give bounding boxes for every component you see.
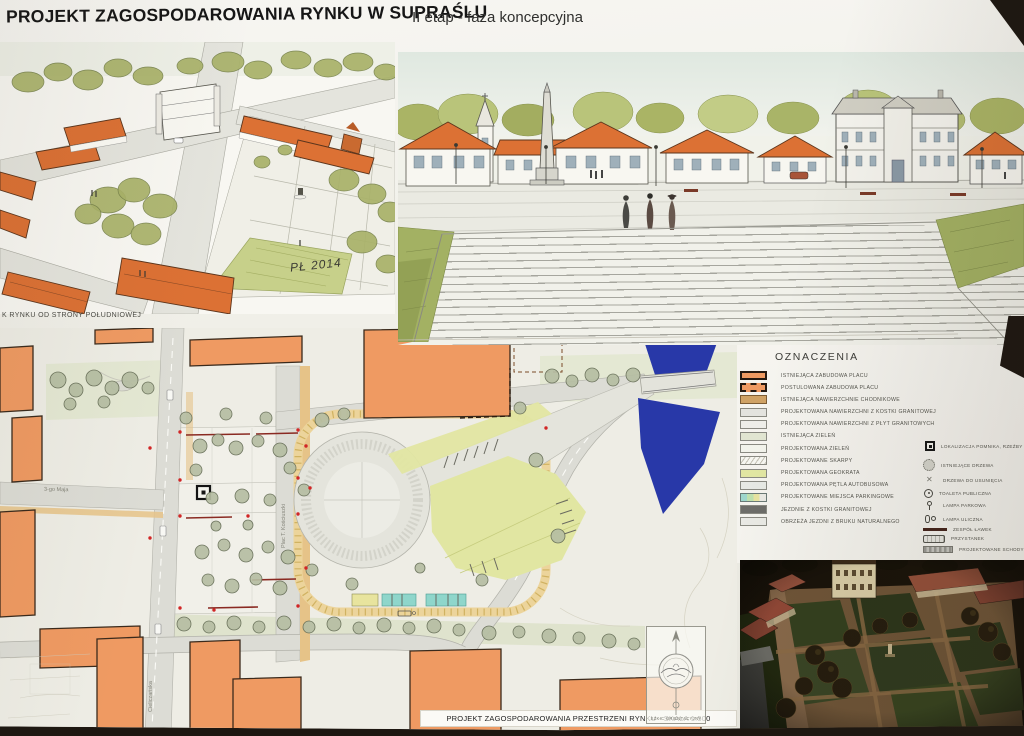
tree-icon [923, 459, 935, 471]
sketch-south-view [0, 42, 395, 314]
legend-item: DRZEWA DO USUNIĘCIA [923, 475, 1023, 486]
site-plan-drawing [0, 328, 737, 736]
legend-panel: OZNACZENIA ISTNIEJĄCA ZABUDOWA PLACUPOST… [737, 341, 1024, 563]
legend-label: OBRZEŻA JEZDNI Z BRUKU NATURALNEGO [781, 519, 900, 525]
legend-label: LAMPA PARKOWA [943, 503, 986, 508]
legend-item: ISTNIEJĄCA NAWIERZCHNIE CHODNIKOWE [740, 395, 936, 404]
park-lamp-icon [923, 500, 937, 511]
legend-item: PROJEKTOWANA NAWIERZCHNI Z KOSTKI GRANIT… [740, 408, 936, 417]
legend-item: PROJEKTOWANE SKARPY [740, 456, 936, 465]
roadway-swatch [740, 505, 767, 514]
legend-item: PROJEKTOWANA PĘTLA AUTOBUSOWA [740, 481, 936, 490]
legend-label: ISTNIEJĄCA ZIELEŃ [781, 433, 835, 439]
monument-icon [925, 441, 935, 451]
legend-item: PROJEKTOWANE SCHODY [923, 546, 1023, 553]
legend-label: PRZYSTANEK [951, 536, 984, 541]
street-label-plac-kosciuszki: Plac T. Kościuszki [281, 504, 287, 548]
legend-label: PROJEKTOWANE MIEJSCA PARKINGOWE [781, 494, 894, 500]
legend-label: PROJEKTOWANA NAWIERZCHNI Z KOSTKI GRANIT… [781, 409, 936, 415]
legend-item: PRZYSTANEK [923, 535, 1023, 543]
legend-symbol-list: LOKALIZACJA POMNIKA, RZEŹBYISTNIEJĄCE DR… [923, 441, 1023, 555]
legend-label: PROJEKTOWANE SKARPY [781, 458, 852, 464]
legend-item: ISTNIEJĄCE DRZEWA [923, 459, 1023, 471]
legend-label: LOKALIZACJA POMNIKA, RZEŹBY [941, 444, 1023, 449]
poster-paper: PROJEKT ZAGOSPODAROWANIA RYNKU W SUPRAŚL… [0, 0, 1024, 736]
legend-label: ISTNIEJĄCA NAWIERZCHNIE CHODNIKOWE [781, 397, 900, 403]
legend-label: DRZEWA DO USUNIĘCIA [943, 478, 1003, 483]
toilet-icon [924, 489, 933, 498]
legend-item: ISTNIEJĄCA ZABUDOWA PLACU [740, 371, 936, 380]
compass-rose-icon [647, 627, 705, 723]
sketch-east-view [398, 52, 1024, 342]
car [790, 172, 808, 179]
legend-label: PROJEKTOWANA GEOKRATA [781, 470, 860, 476]
road-edge-swatch [740, 517, 767, 526]
legend-label: TOALETA PUBLICZNA [939, 491, 991, 496]
legend-label: LAMPA ULICZNA [943, 517, 983, 522]
legend-item: OBRZEŻA JEZDNI Z BRUKU NATURALNEGO [740, 517, 936, 526]
compass-label: SZKIC ORIENTACYJNY [647, 716, 705, 721]
render-3d-drawing [740, 560, 1024, 736]
legend-item: JEZDNIE Z KOSTKI GRANITOWEJ [740, 505, 936, 514]
render-3d-visualization [740, 560, 1024, 736]
legend-title: OZNACZENIA [775, 351, 859, 363]
legend-item: LAMPA ULICZNA [923, 514, 1023, 525]
legend-item: TOALETA PUBLICZNA [923, 489, 1023, 498]
legend-label: POSTULOWANA ZABUDOWA PLACU [781, 385, 878, 391]
street-label-cieliczanska: Cieliczańska [148, 681, 154, 712]
legend-item: ZESPÓŁ ŁAWEK [923, 527, 1023, 532]
existing-sidewalk-swatch [740, 395, 767, 404]
parking-swatch [740, 493, 767, 502]
legend-item: PROJEKTOWANA GEOKRATA [740, 469, 936, 478]
bus-stop-icon [923, 535, 945, 543]
legend-item: PROJEKTOWANE MIEJSCA PARKINGOWE [740, 493, 936, 502]
legend-item: LOKALIZACJA POMNIKA, RZEŹBY [923, 441, 1023, 451]
compass-box: SZKIC ORIENTACYJNY [646, 626, 706, 724]
granite-slab-swatch [740, 420, 767, 429]
legend-label: PROJEKTOWANA ZIELEŃ [781, 446, 849, 452]
south-sketch-drawing [0, 42, 395, 314]
planned-green-swatch [740, 444, 767, 453]
legend-item: LAMPA PARKOWA [923, 500, 1023, 511]
poster-subtitle: II etap - faza koncepcyjna [412, 9, 583, 26]
legend-item: PROJEKTOWANA ZIELEŃ [740, 444, 936, 453]
legend-label: PROJEKTOWANA NAWIERZCHNI Z PŁYT GRANITOW… [781, 421, 934, 427]
legend-item: ISTNIEJĄCA ZIELEŃ [740, 432, 936, 441]
benches-icon [923, 528, 947, 531]
legend-item: PROJEKTOWANA NAWIERZCHNI Z PŁYT GRANITOW… [740, 420, 936, 429]
legend-label: ISTNIEJĄCA ZABUDOWA PLACU [781, 373, 868, 379]
postulated-building-swatch [740, 383, 767, 392]
slopes-swatch [740, 456, 767, 465]
existing-green-swatch [740, 432, 767, 441]
site-plan: 3-go Maja Plac T. Kościuszki Cieliczańsk… [0, 328, 737, 736]
south-view-caption: K RYNKU OD STRONY POŁUDNIOWEJ [2, 312, 141, 319]
street-lamp-icon [923, 514, 937, 525]
granite-cobble-swatch [740, 408, 767, 417]
legend-item: POSTULOWANA ZABUDOWA PLACU [740, 383, 936, 392]
existing-building-swatch [740, 371, 767, 380]
geogrid-swatch [740, 469, 767, 478]
legend-label: PROJEKTOWANA PĘTLA AUTOBUSOWA [781, 482, 889, 488]
legend-label: ZESPÓŁ ŁAWEK [953, 527, 992, 532]
stairs-icon [923, 546, 953, 553]
legend-surface-list: ISTNIEJĄCA ZABUDOWA PLACUPOSTULOWANA ZAB… [740, 371, 936, 529]
east-sketch-drawing [398, 52, 1024, 342]
street-label-3-maja: 3-go Maja [44, 487, 69, 493]
bus-loop-swatch [740, 481, 767, 490]
sketch-car [174, 138, 183, 143]
legend-label: ISTNIEJĄCE DRZEWA [941, 463, 994, 468]
legend-label: PROJEKTOWANE SCHODY [959, 547, 1024, 552]
poster-photo: PROJEKT ZAGOSPODAROWANIA RYNKU W SUPRAŚL… [0, 0, 1024, 736]
tree-remove-icon [923, 475, 937, 486]
legend-label: JEZDNIE Z KOSTKI GRANITOWEJ [781, 507, 872, 513]
